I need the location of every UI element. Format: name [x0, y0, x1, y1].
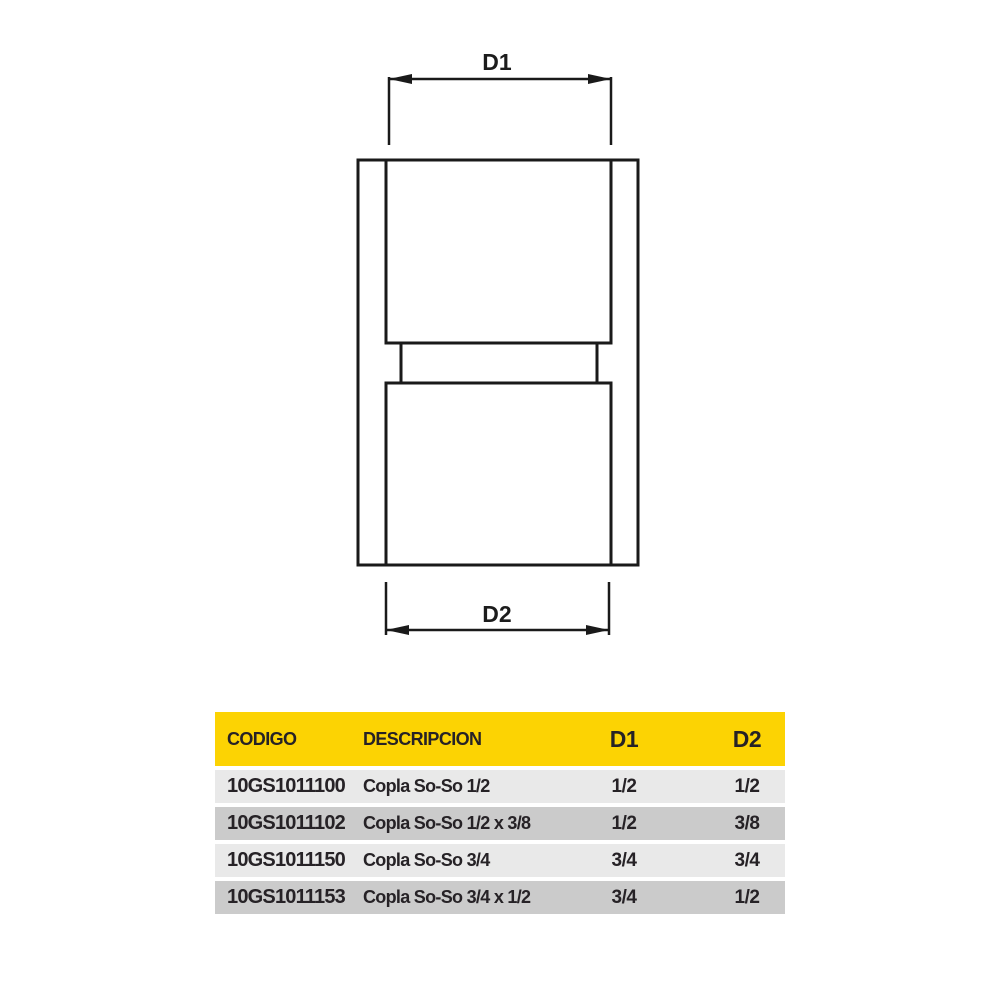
table-row: 10GS1011150 Copla So-So 3/4 3/4 3/4: [215, 844, 785, 877]
dimension-d1: D1: [389, 49, 611, 145]
cell-descripcion: Copla So-So 3/4: [363, 844, 490, 877]
cell-d2: 1/2: [735, 770, 760, 803]
header-cell-d1: D1: [610, 712, 638, 766]
dimension-d2: D2: [386, 582, 609, 635]
dim-d1-arrow-right: [588, 74, 611, 84]
table-header-row: CODIGO DESCRIPCION D1 D2: [215, 712, 785, 766]
header-cell-descripcion: DESCRIPCION: [363, 712, 481, 766]
cell-descripcion: Copla So-So 1/2: [363, 770, 490, 803]
cell-descripcion: Copla So-So 3/4 x 1/2: [363, 881, 530, 914]
cell-descripcion: Copla So-So 1/2 x 3/8: [363, 807, 530, 840]
cell-d1: 3/4: [612, 881, 637, 914]
coupling-diagram: D1 D2: [0, 0, 1000, 680]
table-row: 10GS1011153 Copla So-So 3/4 x 1/2 3/4 1/…: [215, 881, 785, 914]
cell-codigo: 10GS1011153: [227, 881, 345, 914]
cell-d1: 3/4: [612, 844, 637, 877]
cell-d1: 1/2: [612, 770, 637, 803]
cell-d2: 3/8: [735, 807, 760, 840]
dim-d2-label: D2: [482, 601, 511, 627]
dim-d2-arrow-left: [386, 625, 409, 635]
table-row: 10GS1011100 Copla So-So 1/2 1/2 1/2: [215, 770, 785, 803]
cell-d2: 3/4: [735, 844, 760, 877]
product-table: CODIGO DESCRIPCION D1 D2 10GS1011100 Cop…: [215, 712, 785, 914]
cell-codigo: 10GS1011150: [227, 844, 345, 877]
header-cell-d2: D2: [733, 712, 761, 766]
cell-codigo: 10GS1011100: [227, 770, 345, 803]
dim-d1-arrow-left: [389, 74, 412, 84]
dim-d1-extension-lines: [389, 77, 611, 145]
cell-d1: 1/2: [612, 807, 637, 840]
cell-d2: 1/2: [735, 881, 760, 914]
dim-d1-label: D1: [482, 49, 512, 75]
table-row: 10GS1011102 Copla So-So 1/2 x 3/8 1/2 3/…: [215, 807, 785, 840]
product-sheet: D1 D2 CODIGO DESCRIPCION D1 D2 10GS10111…: [0, 0, 1000, 1000]
cell-codigo: 10GS1011102: [227, 807, 345, 840]
dim-d2-arrow-right: [586, 625, 609, 635]
header-cell-codigo: CODIGO: [227, 712, 296, 766]
